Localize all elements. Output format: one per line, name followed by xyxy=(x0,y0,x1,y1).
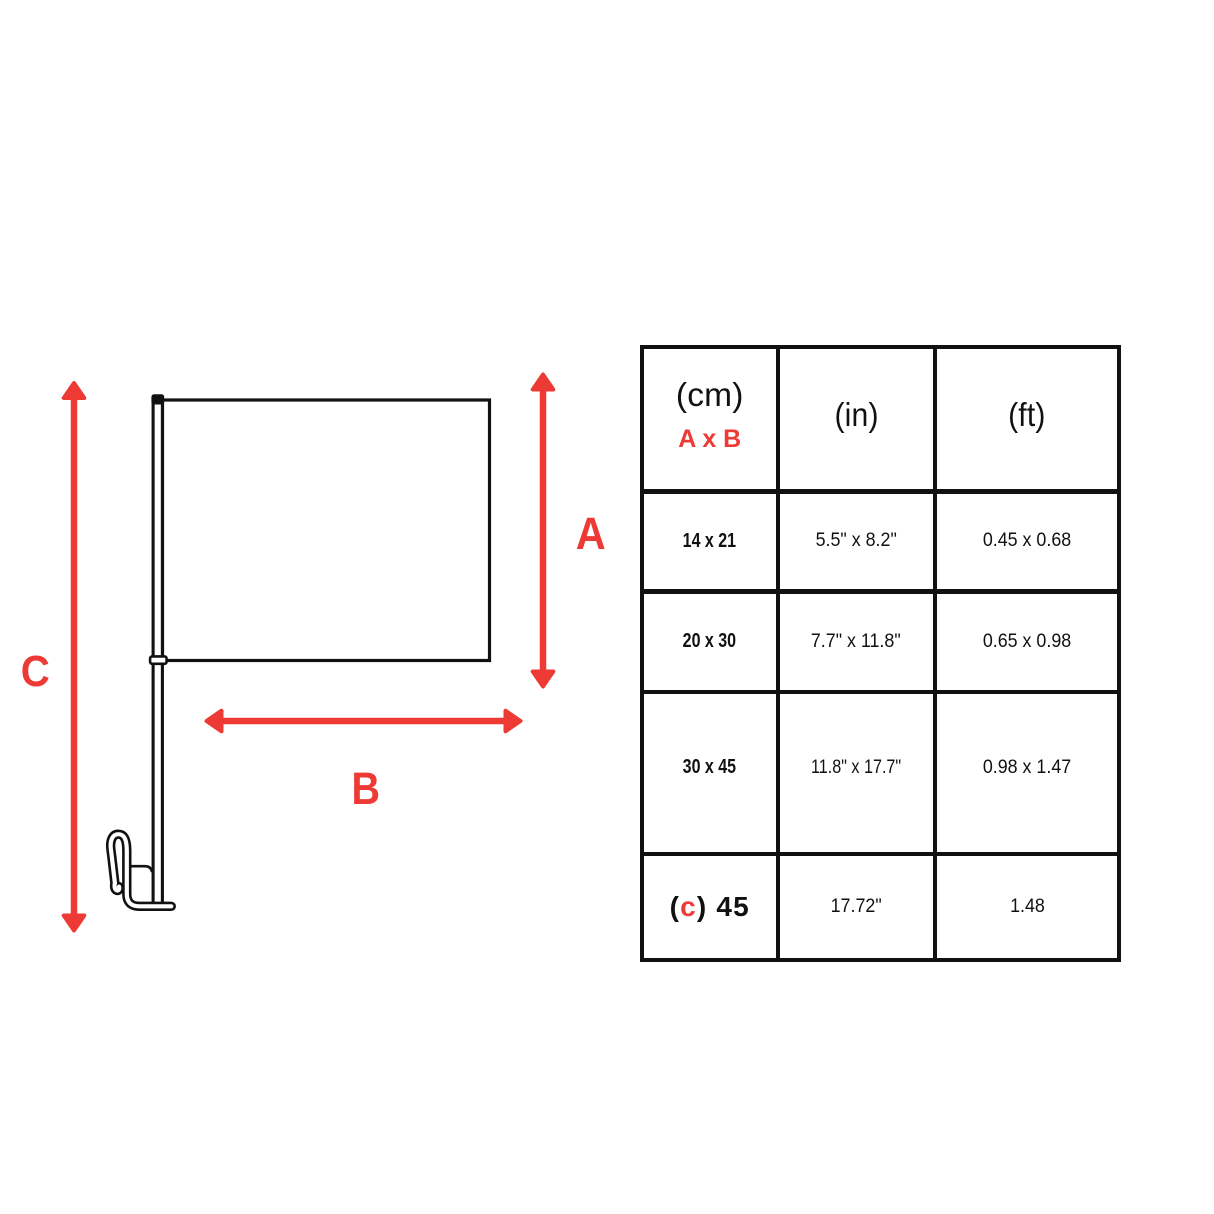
svg-text:B: B xyxy=(351,763,380,814)
svg-text:C: C xyxy=(21,647,50,696)
svg-text:A: A xyxy=(576,508,606,559)
